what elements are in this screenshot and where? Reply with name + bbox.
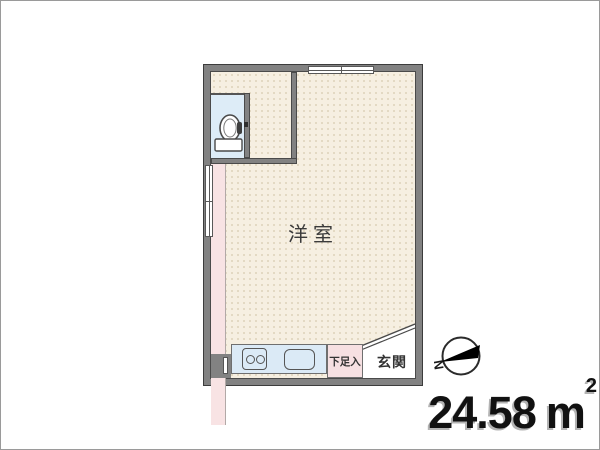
floorplan: 玄関 下足入 洋室 xyxy=(203,64,423,386)
area-value: 24.58 xyxy=(428,387,536,438)
area-unit: m xyxy=(546,387,585,438)
window-divider xyxy=(206,201,212,202)
compass-letter: N xyxy=(434,359,447,371)
floor-area-text: 24.58m2 xyxy=(428,390,596,435)
bottom-left-wall-block xyxy=(211,354,231,378)
toilet-door-hinge xyxy=(244,122,248,127)
toilet-icon xyxy=(211,95,244,158)
sink-icon xyxy=(284,349,315,370)
bottom-left-door-bar xyxy=(223,357,228,374)
window-top-symbol xyxy=(308,66,374,74)
entrance-label: 玄関 xyxy=(369,352,415,372)
window-divider xyxy=(341,67,342,73)
inner-wall-vertical xyxy=(291,72,297,164)
stove-icon xyxy=(242,348,267,370)
left-floor-strip xyxy=(211,164,226,425)
window-left-symbol xyxy=(205,165,213,237)
area-superscript: 2 xyxy=(586,375,597,397)
apartment-interior: 玄関 下足入 洋室 xyxy=(211,72,415,378)
main-room-label: 洋室 xyxy=(273,218,353,247)
shoe-storage: 下足入 xyxy=(327,344,363,378)
north-arrow-icon: N xyxy=(434,332,490,382)
stove-burner-icon xyxy=(256,355,265,364)
shoe-storage-label: 下足入 xyxy=(329,354,361,369)
toilet-room xyxy=(211,95,244,158)
kitchen-counter xyxy=(231,344,327,374)
stove-burner-icon xyxy=(246,355,255,364)
floorplan-image: 玄関 下足入 洋室 N xyxy=(0,0,600,450)
